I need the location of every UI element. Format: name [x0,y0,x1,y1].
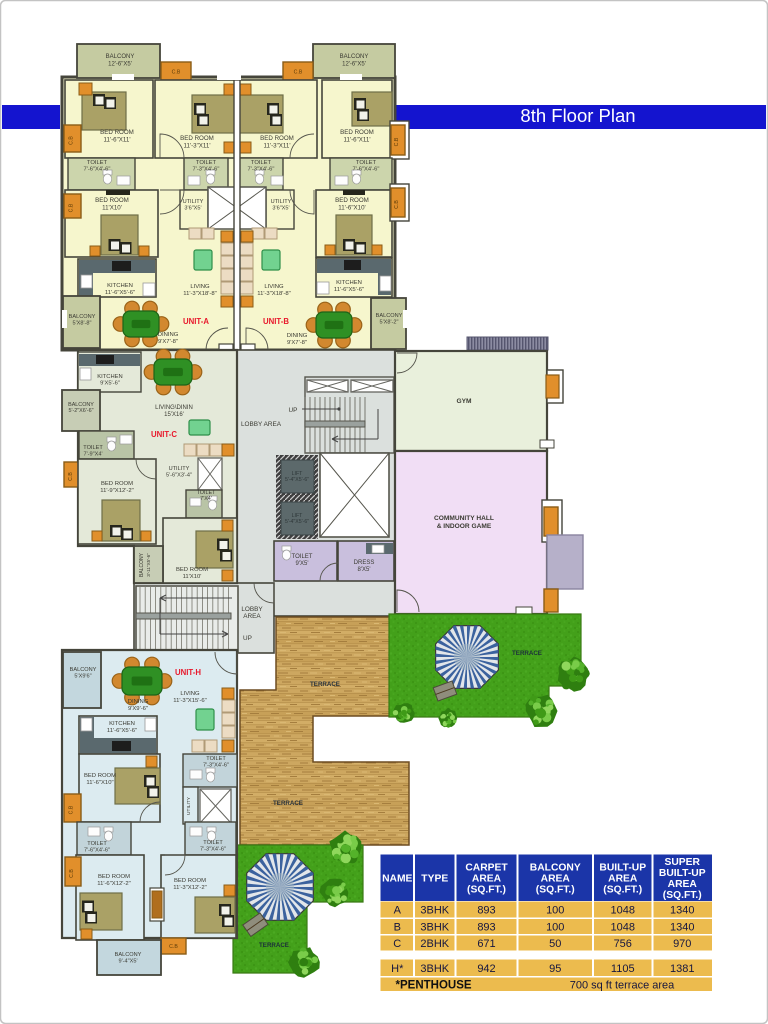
svg-text:C.B: C.B [394,137,400,146]
svg-text:UTILITY: UTILITY [169,466,190,472]
svg-text:TOILET: TOILET [197,490,216,496]
svg-text:7'-3"X4'-6": 7'-3"X4'-6" [203,762,229,768]
svg-text:7'-6"X4'-6": 7'-6"X4'-6" [353,167,380,173]
svg-text:8th Floor Plan: 8th Floor Plan [520,105,635,126]
svg-text:15'X16': 15'X16' [164,412,184,418]
svg-text:DINING: DINING [287,333,308,339]
svg-text:A: A [394,905,402,917]
svg-text:TOILET: TOILET [87,841,107,847]
svg-text:BALCONY: BALCONY [69,314,96,320]
svg-text:5'-2"X6'-6": 5'-2"X6'-6" [68,408,93,414]
svg-text:BED ROOM: BED ROOM [180,135,214,142]
svg-text:GYM: GYM [456,398,472,405]
svg-text:TOILET: TOILET [206,756,226,762]
svg-text:11'-6"X11': 11'-6"X11' [343,136,370,143]
svg-text:3'-11"X5'-6": 3'-11"X5'-6" [146,553,151,577]
svg-text:KITCHEN: KITCHEN [97,374,122,380]
svg-text:BALCONY: BALCONY [106,54,135,60]
svg-text:7'-3"X4'-6": 7'-3"X4'-6" [200,846,226,852]
svg-text:COMMUNITY HALL: COMMUNITY HALL [434,515,494,522]
svg-text:AREA: AREA [472,873,502,884]
svg-text:7'-3"X4'-6": 7'-3"X4'-6" [193,167,220,173]
svg-text:11'-3"X12'-2": 11'-3"X12'-2" [173,885,207,891]
svg-text:9'X9'-6": 9'X9'-6" [128,706,148,712]
svg-text:UP: UP [289,407,298,414]
svg-text:KITCHEN: KITCHEN [107,283,133,289]
svg-text:9'X7'-8": 9'X7'-8" [158,339,178,345]
svg-text:UP: UP [243,635,252,642]
svg-text:3'6"X5': 3'6"X5' [272,206,289,212]
svg-text:AREA: AREA [668,879,698,890]
svg-text:11'-3"X11': 11'-3"X11' [263,142,290,149]
svg-text:5'-6"X3'-4": 5'-6"X3'-4" [166,472,192,478]
svg-text:BED ROOM: BED ROOM [340,129,374,136]
svg-text:DRESS: DRESS [354,560,375,566]
svg-text:BED ROOM: BED ROOM [101,481,133,487]
svg-text:DINING: DINING [128,699,149,705]
svg-text:TERRACE: TERRACE [259,942,289,949]
svg-text:BED ROOM: BED ROOM [260,135,294,142]
svg-text:H*: H* [391,963,404,975]
svg-text:(SQ.FT.): (SQ.FT.) [536,884,575,895]
svg-text:UNIT-B: UNIT-B [263,317,289,326]
svg-text:UNIT-C: UNIT-C [151,430,177,439]
svg-text:(SQ.FT.): (SQ.FT.) [663,890,702,901]
svg-text:11'-6"X5'-6": 11'-6"X5'-6" [334,287,364,293]
svg-text:3'6"X5': 3'6"X5' [184,206,201,212]
svg-text:671: 671 [477,938,495,950]
svg-text:B: B [394,922,401,934]
svg-text:1340: 1340 [670,905,694,917]
svg-text:*PENTHOUSE: *PENTHOUSE [396,979,472,991]
svg-text:C.B: C.B [69,136,75,145]
svg-text:LOBBY AREA: LOBBY AREA [241,421,282,428]
svg-text:756: 756 [614,938,632,950]
svg-text:7'-9"X4': 7'-9"X4' [83,451,102,457]
svg-text:TERRACE: TERRACE [310,681,340,688]
svg-text:DINING: DINING [158,332,179,338]
svg-text:1048: 1048 [611,905,635,917]
svg-text:C.B: C.B [172,70,181,76]
svg-text:BED ROOM: BED ROOM [174,878,206,884]
svg-text:11'X10': 11'X10' [183,574,202,580]
svg-text:TERRACE: TERRACE [273,800,303,807]
svg-text:UTILITY: UTILITY [186,796,192,815]
svg-text:BALCONY: BALCONY [376,313,403,319]
svg-text:5'X8'-2": 5'X8'-2" [379,319,398,325]
svg-text:BED ROOM: BED ROOM [98,874,130,880]
svg-text:BUILT-UP: BUILT-UP [659,868,706,879]
svg-text:AREA: AREA [243,613,261,620]
svg-text:11'-9"X12'-2": 11'-9"X12'-2" [100,488,134,494]
svg-text:UNIT-A: UNIT-A [183,317,209,326]
svg-text:TOILET: TOILET [87,160,108,166]
svg-text:TOILET: TOILET [83,445,103,451]
svg-text:5'X8'-8": 5'X8'-8" [72,320,91,326]
svg-text:BALCONY: BALCONY [340,54,369,60]
svg-text:11'-6"X5'-6": 11'-6"X5'-6" [107,728,137,734]
svg-text:AREA: AREA [608,873,638,884]
svg-text:3BHK: 3BHK [420,905,449,917]
svg-text:100: 100 [546,922,564,934]
svg-text:7'X4': 7'X4' [200,496,212,502]
svg-text:5'-4"X5'-6": 5'-4"X5'-6" [285,519,309,525]
svg-text:BALCONY: BALCONY [70,667,97,673]
svg-text:TOILET: TOILET [292,554,313,560]
svg-text:95: 95 [549,963,561,975]
svg-text:11'-3"X18'-8": 11'-3"X18'-8" [257,291,291,297]
svg-text:3BHK: 3BHK [420,963,449,975]
svg-text:11'-3"X15'-6": 11'-3"X15'-6" [173,698,207,704]
svg-text:11'X10': 11'X10' [102,204,122,211]
svg-text:12'-6"X5': 12'-6"X5' [342,61,366,67]
svg-text:BED ROOM: BED ROOM [84,773,116,779]
svg-text:893: 893 [477,905,495,917]
svg-text:UTILITY: UTILITY [183,199,204,205]
svg-text:TOILET: TOILET [203,840,223,846]
svg-text:C.B: C.B [69,869,75,878]
svg-text:LIVING: LIVING [180,691,200,697]
svg-text:(SQ.FT.): (SQ.FT.) [467,884,506,895]
svg-text:C.B: C.B [294,70,303,76]
svg-text:100: 100 [546,905,564,917]
svg-text:12'-6"X5': 12'-6"X5' [108,61,132,67]
svg-text:BALCONY: BALCONY [115,952,142,958]
svg-text:TYPE: TYPE [421,873,448,884]
svg-text:1340: 1340 [670,922,694,934]
svg-text:3BHK: 3BHK [420,922,449,934]
svg-text:9'X5'-6": 9'X5'-6" [100,381,120,387]
svg-text:LIVING: LIVING [190,284,210,290]
svg-text:C.B: C.B [169,944,178,950]
svg-text:C.B: C.B [68,472,74,481]
svg-text:CARPET: CARPET [465,862,508,873]
svg-text:11'-3"X11': 11'-3"X11' [183,142,210,149]
svg-text:LIVING\DININ: LIVING\DININ [155,405,193,411]
svg-text:9'-4"X5': 9'-4"X5' [118,958,137,964]
svg-text:11'-6"X11': 11'-6"X11' [103,136,130,143]
svg-text:9'X7'-8": 9'X7'-8" [287,340,307,346]
svg-text:KITCHEN: KITCHEN [336,280,362,286]
svg-text:942: 942 [477,963,495,975]
svg-text:11'-6"X10": 11'-6"X10" [86,780,113,786]
svg-text:C.B: C.B [69,805,75,814]
svg-text:LOBBY: LOBBY [241,606,263,613]
svg-text:1048: 1048 [611,922,635,934]
svg-text:BED ROOM: BED ROOM [335,197,369,204]
svg-text:11'-6"X12'-2": 11'-6"X12'-2" [97,881,131,887]
svg-text:9'X5': 9'X5' [296,561,309,567]
svg-text:SUPER: SUPER [665,857,701,868]
svg-text:NAME: NAME [382,873,412,884]
svg-text:5'-4"X5'-6": 5'-4"X5'-6" [285,477,309,483]
svg-text:TOILET: TOILET [196,160,217,166]
svg-text:LIVING: LIVING [264,284,284,290]
svg-text:BUILT-UP: BUILT-UP [599,862,646,873]
svg-text:BALCONY: BALCONY [530,862,581,873]
svg-text:1105: 1105 [611,963,635,975]
svg-text:C: C [393,938,401,950]
svg-text:11'-3"X18'-8": 11'-3"X18'-8" [183,291,217,297]
svg-text:7'-6"X4'-6": 7'-6"X4'-6" [84,847,110,853]
svg-text:2BHK: 2BHK [420,938,449,950]
svg-text:7'-3"X4'-6": 7'-3"X4'-6" [248,167,275,173]
svg-text:1381: 1381 [670,963,694,975]
svg-text:C.B: C.B [394,200,400,209]
svg-text:7'-6"X4'-6": 7'-6"X4'-6" [84,167,111,173]
svg-text:893: 893 [477,922,495,934]
svg-text:50: 50 [549,938,561,950]
svg-text:BALCONY: BALCONY [139,552,145,577]
svg-text:TERRACE: TERRACE [512,650,542,657]
svg-text:AREA: AREA [541,873,571,884]
svg-text:5'X9'6": 5'X9'6" [74,673,91,679]
svg-text:TOILET: TOILET [356,160,377,166]
svg-text:TOILET: TOILET [251,160,272,166]
svg-text:UTILITY: UTILITY [271,199,292,205]
svg-text:C.B: C.B [69,203,75,212]
svg-text:BED ROOM: BED ROOM [95,197,129,204]
svg-text:700 sq ft terrace area: 700 sq ft terrace area [570,979,675,991]
svg-text:11'-6"X5'-6": 11'-6"X5'-6" [105,290,135,296]
svg-text:BED ROOM: BED ROOM [100,129,134,136]
svg-text:& INDOOR GAME: & INDOOR GAME [437,523,492,530]
svg-text:BALCONY: BALCONY [68,402,94,408]
svg-text:11'-6"X10': 11'-6"X10' [338,204,366,211]
svg-text:970: 970 [673,938,691,950]
svg-text:8'X5': 8'X5' [358,567,371,573]
svg-text:UNIT-H: UNIT-H [175,668,201,677]
svg-text:(SQ.FT.): (SQ.FT.) [603,884,642,895]
svg-text:BED ROOM: BED ROOM [176,567,208,573]
svg-text:KITCHEN: KITCHEN [109,721,135,727]
